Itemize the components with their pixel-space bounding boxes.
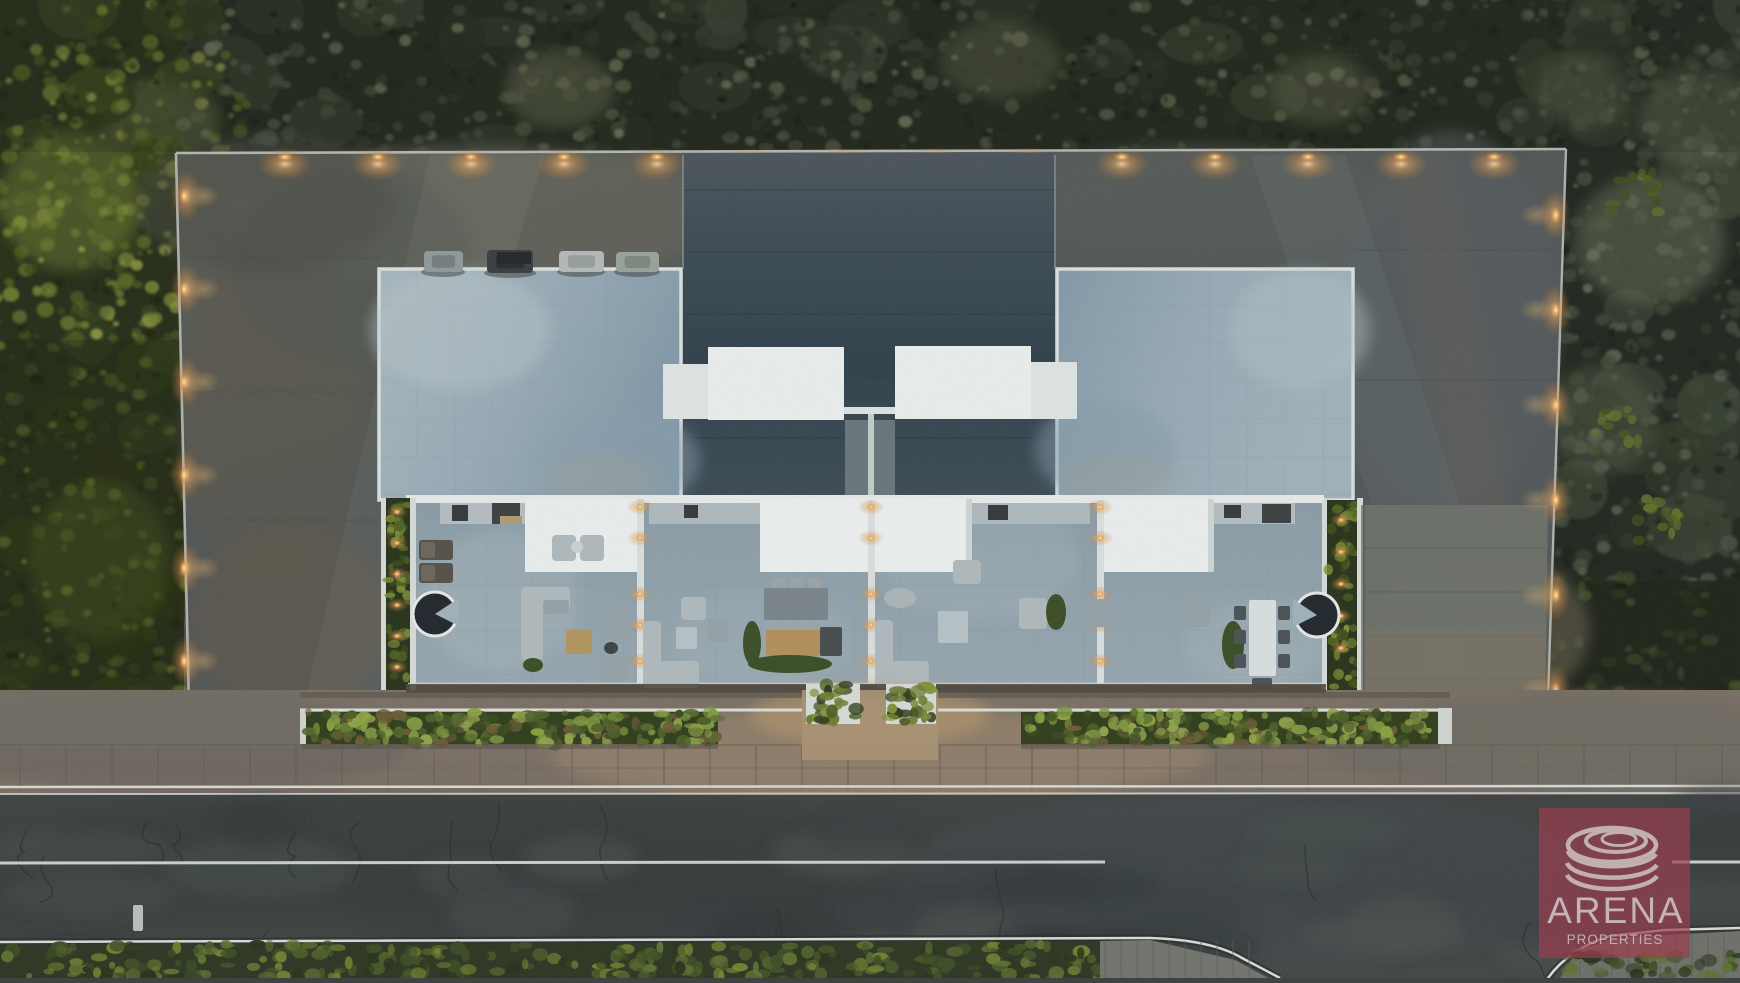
svg-text:PROPERTIES: PROPERTIES	[1567, 932, 1664, 947]
svg-text:ARENA: ARENA	[1547, 890, 1684, 931]
